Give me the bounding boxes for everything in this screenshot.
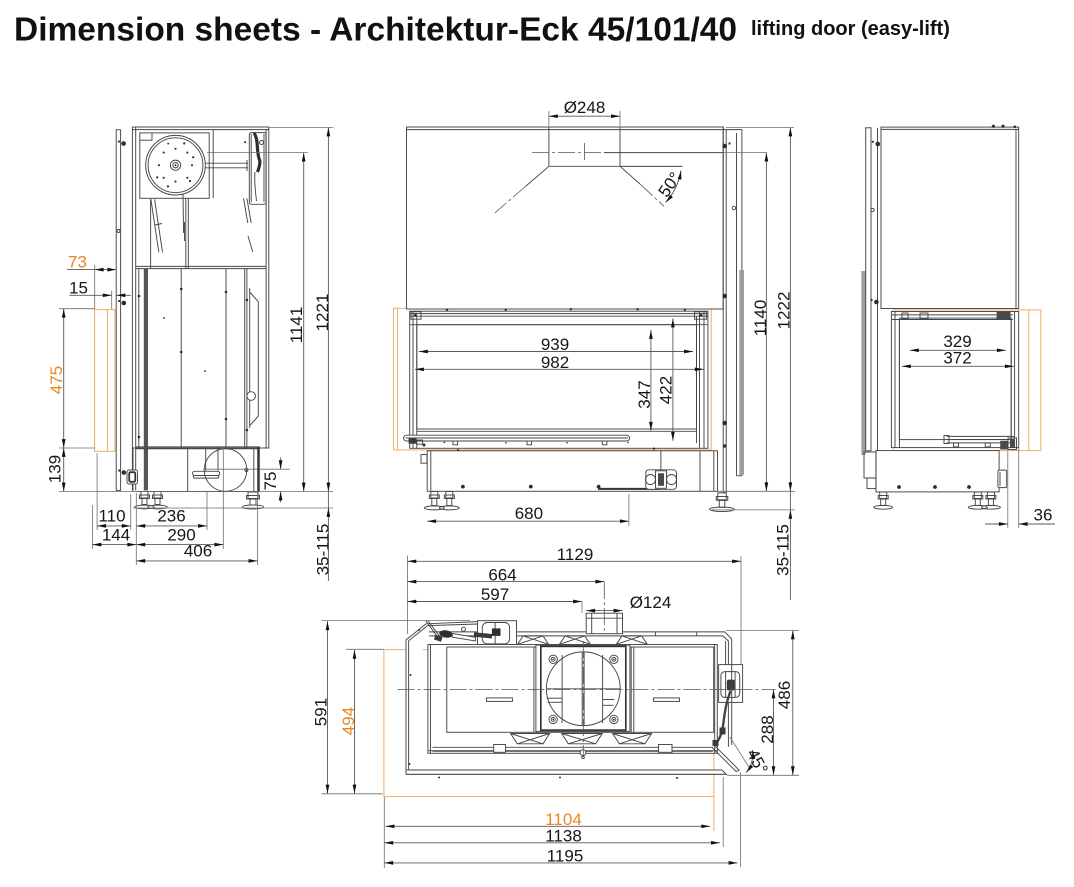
svg-text:35-115: 35-115 <box>773 524 792 576</box>
svg-text:1222: 1222 <box>774 292 793 330</box>
svg-text:Ø248: Ø248 <box>564 98 606 117</box>
svg-text:144: 144 <box>102 526 130 545</box>
svg-text:422: 422 <box>656 376 675 404</box>
svg-text:Ø124: Ø124 <box>630 593 672 612</box>
svg-text:139: 139 <box>45 455 64 483</box>
svg-text:288: 288 <box>758 715 777 743</box>
svg-text:347: 347 <box>635 380 654 408</box>
svg-text:1129: 1129 <box>557 545 594 564</box>
svg-text:982: 982 <box>541 353 569 372</box>
svg-text:lifting door (easy-lift): lifting door (easy-lift) <box>751 18 950 40</box>
svg-text:15: 15 <box>69 278 88 297</box>
svg-text:1141: 1141 <box>287 307 306 344</box>
svg-text:236: 236 <box>157 507 185 526</box>
svg-text:Dimension sheets - Architektur: Dimension sheets - Architektur-Eck 45/10… <box>14 12 737 49</box>
svg-text:1195: 1195 <box>547 847 584 866</box>
svg-text:1138: 1138 <box>545 827 582 846</box>
svg-text:36: 36 <box>1034 506 1053 525</box>
svg-text:597: 597 <box>481 585 509 604</box>
svg-text:680: 680 <box>515 504 543 523</box>
svg-text:75: 75 <box>261 472 280 491</box>
svg-text:73: 73 <box>68 253 87 272</box>
svg-text:475: 475 <box>47 366 66 394</box>
svg-text:372: 372 <box>943 348 971 367</box>
svg-text:110: 110 <box>98 507 125 526</box>
svg-text:35-115: 35-115 <box>313 524 332 576</box>
svg-text:664: 664 <box>488 565 516 584</box>
svg-text:486: 486 <box>775 681 794 709</box>
svg-text:1221: 1221 <box>313 294 332 332</box>
svg-text:406: 406 <box>184 542 212 561</box>
svg-text:939: 939 <box>541 335 569 354</box>
svg-text:591: 591 <box>311 698 330 726</box>
svg-text:494: 494 <box>339 707 358 735</box>
svg-text:1140: 1140 <box>751 300 770 337</box>
